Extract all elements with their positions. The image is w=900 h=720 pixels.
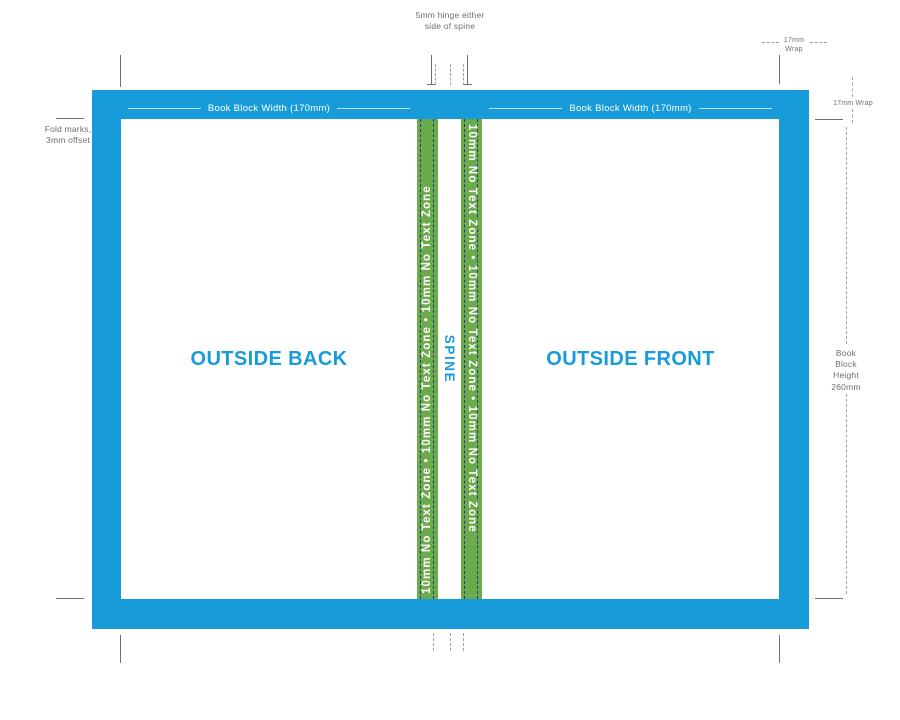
measure-line: [337, 108, 410, 109]
no-text-zone-bar-right: 10mm No Text Zone • 10mm No Text Zone • …: [461, 119, 482, 599]
hinge-pointer-right-foot: [463, 84, 472, 85]
spine-fold-mark-bottom-right: [463, 633, 464, 651]
book-block-height-label: Book Block Height 260mm: [818, 348, 874, 393]
spine-fold-mark-bottom-center: [450, 633, 451, 651]
spine-fold-mark-top-right: [463, 64, 464, 85]
measure-line: [489, 108, 562, 109]
outside-front-label: OUTSIDE FRONT: [482, 119, 779, 599]
spine-fold-mark-top-left: [435, 64, 436, 85]
book-cover-print-template: 5mm hinge either side of spine 17mm Wrap…: [0, 0, 900, 720]
wrap-top-label: 17mm Wrap: [777, 36, 811, 54]
measure-line: [128, 108, 201, 109]
hinge-note-label: 5mm hinge either side of spine: [375, 10, 525, 32]
fold-mark-bottom-left: [120, 635, 121, 663]
measure-line: [699, 108, 772, 109]
no-text-zone-right-text: 10mm No Text Zone • 10mm No Text Zone • …: [461, 119, 482, 599]
height-measure-dash-lower: [846, 394, 847, 594]
spine-fold-mark-top-center: [450, 64, 451, 85]
wrap-right-label: 17mm Wrap: [830, 99, 876, 108]
outside-back-label: OUTSIDE BACK: [121, 119, 417, 599]
wrap-top-dash-right: [810, 42, 827, 43]
fold-mark-left-bottom: [56, 598, 84, 599]
book-block-width-front-label: Book Block Width (170mm): [569, 103, 691, 114]
hinge-pointer-left-line: [431, 55, 432, 84]
fold-mark-top-right: [779, 55, 780, 84]
book-block-width-back-label: Book Block Width (170mm): [208, 103, 330, 114]
fold-mark-right-top: [815, 119, 843, 120]
no-text-zone-left-text: 10mm No Text Zone • 10mm No Text Zone • …: [417, 119, 438, 599]
book-block-width-measure-back: Book Block Width (170mm): [121, 100, 417, 116]
fold-mark-bottom-right: [779, 635, 780, 663]
book-block-width-measure-front: Book Block Width (170mm): [482, 100, 779, 116]
spine-area: SPINE: [438, 119, 461, 599]
wrap-right-dash-top: [852, 77, 853, 97]
hinge-pointer-right-line: [467, 55, 468, 84]
wrap-right-dash-bottom: [852, 109, 853, 123]
spine-fold-mark-bottom-left: [433, 633, 434, 651]
no-text-zone-bar-left: 10mm No Text Zone • 10mm No Text Zone • …: [417, 119, 438, 599]
height-measure-dash-upper: [846, 127, 847, 344]
fold-mark-left-top: [56, 118, 84, 119]
fold-mark-right-bottom: [815, 598, 843, 599]
fold-mark-top-left: [120, 55, 121, 87]
spine-label: SPINE: [438, 119, 461, 599]
